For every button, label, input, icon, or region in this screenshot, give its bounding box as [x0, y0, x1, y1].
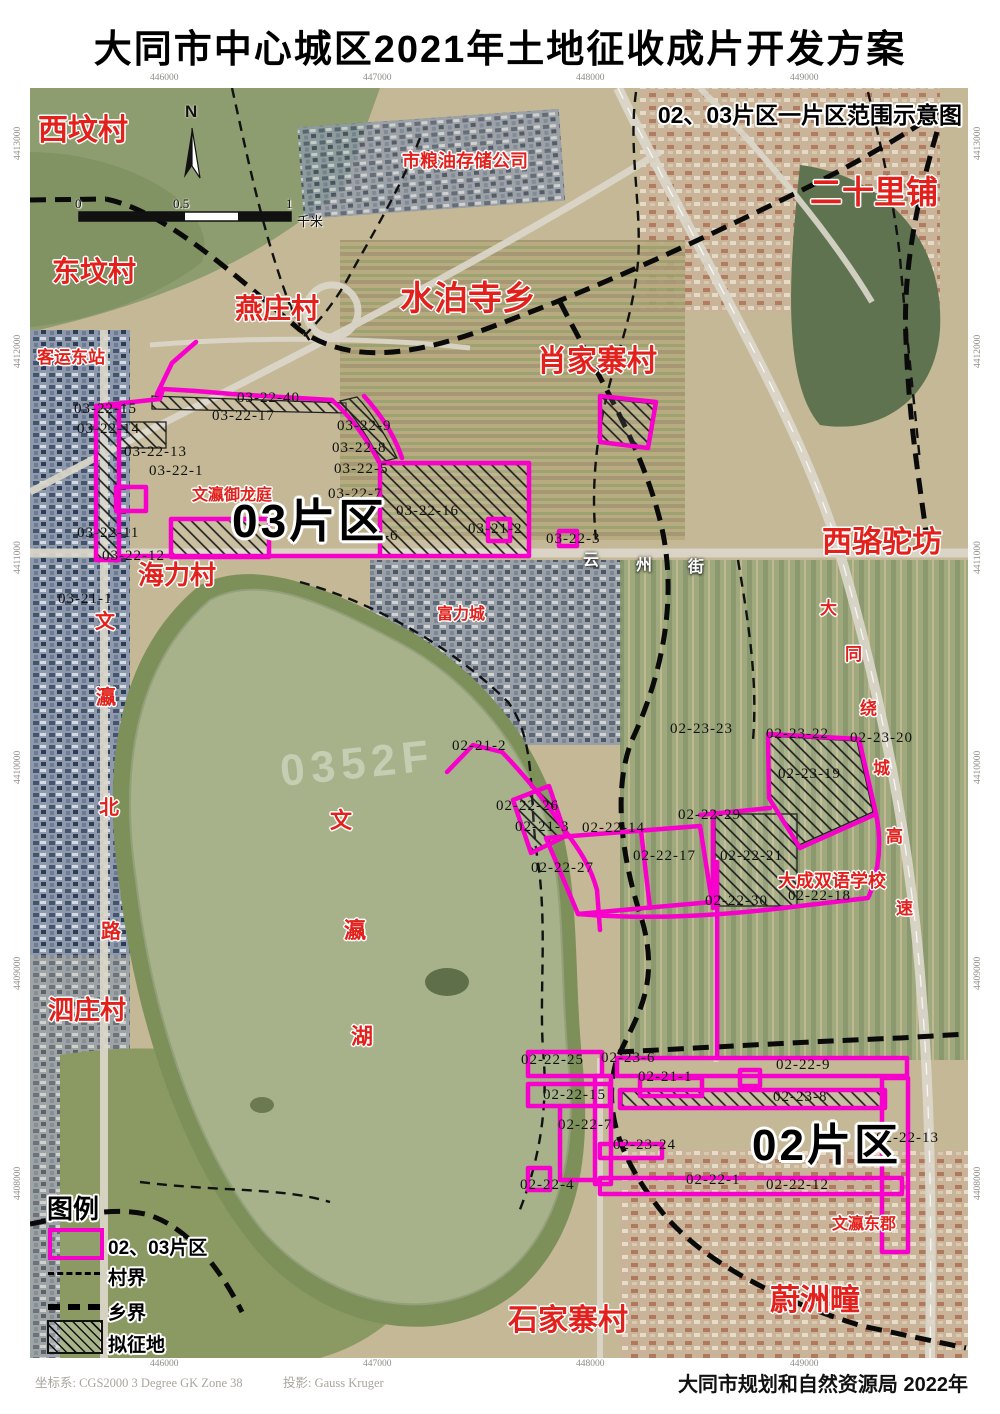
parcel-label: 03-22-17 — [212, 409, 275, 424]
road-label: 街 — [688, 560, 704, 576]
place-label: 海力村 — [138, 562, 216, 588]
legend-title: 图例 — [47, 1196, 99, 1222]
place-label: 客运东站 — [37, 349, 105, 366]
parcel-label: 02-22-7 — [558, 1118, 613, 1133]
place-label: 同 — [845, 646, 862, 663]
grid-coordinate-right: 4411000 — [974, 541, 984, 574]
scale-tick-05: 0.5 — [173, 196, 189, 212]
legend-label-acquisition: 拟征地 — [108, 1330, 165, 1357]
grid-coordinate-top: 448000 — [576, 74, 605, 84]
grid-coordinate-top: 446000 — [150, 74, 179, 84]
place-label: 湖 — [351, 1026, 373, 1048]
footer-agency: 大同市规划和自然资源局 2022年 — [678, 1368, 968, 1397]
parcel-label: 02-22-12 — [766, 1178, 829, 1193]
parcel-label: 03-21-2 — [468, 522, 523, 537]
parcel-label: 02-22-15 — [543, 1088, 606, 1103]
parcel-label: 02-23-8 — [773, 1090, 828, 1105]
parcel-label: 02-22-17 — [633, 849, 696, 864]
road-label: 州 — [636, 558, 652, 574]
place-label: 绕 — [860, 700, 877, 717]
parcel-label: 02-22-25 — [521, 1053, 584, 1068]
parcel-label: 03-22-16 — [396, 504, 459, 519]
place-label: 大 — [820, 600, 837, 617]
grid-coordinate-bottom: 448000 — [576, 1360, 605, 1370]
parcel-label: 02-22-1 — [686, 1173, 741, 1188]
place-label: 文 — [95, 612, 115, 632]
grid-coordinate-top: 449000 — [790, 74, 819, 84]
footer-crs: 坐标系: CGS2000 3 Degree GK Zone 38 — [35, 1372, 243, 1391]
place-label: 文 — [330, 810, 352, 832]
grid-coordinate-left: 4412000 — [14, 335, 24, 368]
parcel-label: 03-22-40 — [237, 391, 300, 406]
parcel-label: 02-22-26 — [496, 799, 559, 814]
place-label: 市粮油存储公司 — [402, 152, 528, 170]
legend-swatch-district — [48, 1228, 104, 1260]
parcel-label: 02-23-24 — [613, 1138, 676, 1153]
parcel-label: 02-22-18 — [788, 889, 851, 904]
grid-coordinate-right: 4408000 — [974, 1167, 984, 1200]
parcel-label: 03-22-3 — [546, 532, 601, 547]
grid-coordinate-left: 4410000 — [14, 751, 24, 784]
grid-coordinate-right: 4413000 — [974, 127, 984, 160]
scale-tick-0: 0 — [75, 196, 82, 212]
parcel-label: 02-23-22 — [766, 727, 829, 742]
parcel-label: 02-21-2 — [452, 739, 507, 754]
grid-coordinate-left: 4408000 — [14, 1167, 24, 1200]
parcel-label: 02-22-14 — [582, 821, 645, 836]
grid-coordinate-right: 4409000 — [974, 957, 984, 990]
place-label: 北 — [99, 798, 119, 818]
scale-bar — [79, 212, 291, 221]
scale-unit: 千米 — [297, 211, 323, 230]
parcel-label: 02-22-27 — [531, 861, 594, 876]
grid-coordinate-left: 4409000 — [14, 957, 24, 990]
grid-coordinate-bottom: 447000 — [363, 1360, 392, 1370]
parcel-label: 02-21-3 — [515, 820, 570, 835]
parcel-label: 02-22-30 — [705, 894, 768, 909]
parcel-label: 02-23-6 — [601, 1051, 656, 1066]
grid-coordinate-left: 4411000 — [14, 541, 24, 574]
parcel-label: 03-22-1 — [149, 464, 204, 479]
parcel-label: 02-22-4 — [520, 1178, 575, 1193]
parcel-label: 03-22-11 — [77, 526, 139, 541]
legend-label-village-border: 村界 — [108, 1263, 146, 1290]
parcel-label: 02-23-19 — [778, 767, 841, 782]
legend-swatch-village-border — [48, 1272, 100, 1275]
place-label: 路 — [101, 922, 121, 942]
place-label: 西坟村 — [38, 116, 128, 146]
grid-coordinate-right: 4410000 — [974, 751, 984, 784]
grid-coordinate-right: 4412000 — [974, 335, 984, 368]
inset-title: 02、03片区一片区范围示意图 — [658, 96, 962, 130]
place-label: 泗庄村 — [48, 997, 126, 1023]
parcel-label: 03-22-12 — [102, 549, 165, 564]
parcel-label: 02-22-29 — [678, 808, 741, 823]
place-label: 东坟村 — [52, 258, 136, 286]
district-label: 02片区 — [752, 1124, 901, 1168]
place-label: 燕庄村 — [235, 295, 319, 323]
parcel-label: 03-22-5 — [334, 462, 389, 477]
place-label: 瀛 — [96, 688, 116, 708]
plan-document: 大同市中心城区2021年土地征收成片开发方案 — [0, 0, 1000, 1414]
place-label: 文瀛东郡 — [832, 1217, 896, 1233]
grid-coordinate-bottom: 446000 — [150, 1360, 179, 1370]
parcel-label: 03-21-1 — [58, 592, 113, 607]
place-label: 蔚洲疃 — [770, 1286, 860, 1316]
parcel-label: 03-22-14 — [77, 422, 140, 437]
road-label: 云 — [583, 553, 599, 569]
parcel-label: 02-23-23 — [670, 722, 733, 737]
place-label: 高 — [886, 828, 903, 845]
parcel-label: 02-22-9 — [776, 1058, 831, 1073]
scale-tick-1: 1 — [286, 196, 293, 212]
place-label: 富力城 — [437, 607, 485, 623]
place-label: 速 — [896, 900, 913, 917]
parcel-label: 03-22-15 — [74, 402, 137, 417]
parcel-label: 03-22-9 — [337, 419, 392, 434]
place-label: 城 — [873, 760, 890, 777]
grid-coordinate-left: 4413000 — [14, 127, 24, 160]
map-art — [0, 0, 1000, 1414]
parcel-label: 02-22-21 — [720, 849, 783, 864]
place-label: 石家寨村 — [508, 1306, 628, 1336]
district-label: 03片区 — [232, 498, 387, 544]
parcel-label: 02-21-1 — [638, 1070, 693, 1085]
footer-projection: 投影: Gauss Kruger — [283, 1372, 384, 1391]
legend-swatch-acquisition — [47, 1320, 103, 1354]
place-label: 肖家寨村 — [537, 347, 657, 377]
place-label: 二十里铺 — [810, 176, 938, 208]
north-label: N — [185, 102, 197, 122]
parcel-label: 03-22-8 — [332, 441, 387, 456]
place-label: 水泊寺乡 — [400, 282, 536, 316]
legend-label-township-border: 乡界 — [108, 1298, 146, 1325]
parcel-label: 03-22-13 — [124, 445, 187, 460]
parcel-label: 02-23-20 — [850, 731, 913, 746]
grid-coordinate-top: 447000 — [363, 74, 392, 84]
place-label: 西骆驼坊 — [822, 528, 942, 558]
place-label: 瀛 — [344, 920, 366, 942]
legend-swatch-township-border — [48, 1304, 100, 1310]
legend-label-district: 02、03片区 — [108, 1233, 207, 1260]
